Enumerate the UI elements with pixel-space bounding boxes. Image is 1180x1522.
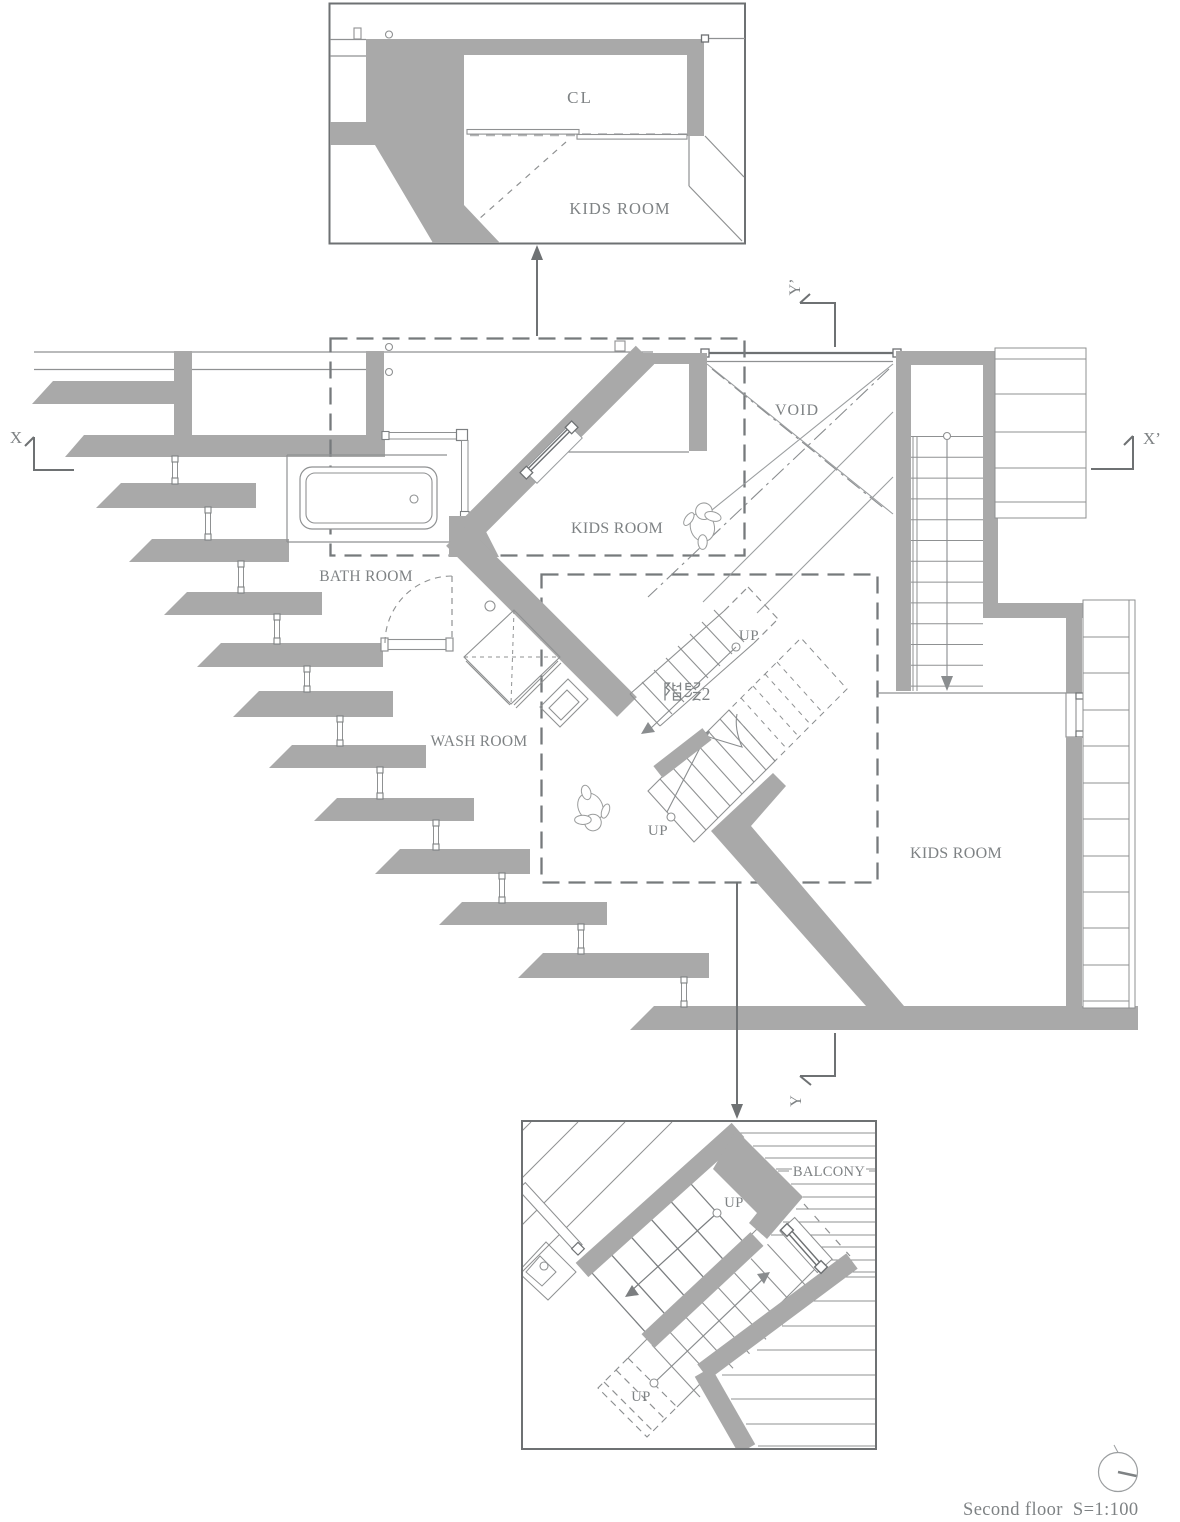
svg-text:UP: UP (648, 823, 668, 839)
svg-text:CL: CL (567, 88, 593, 107)
svg-text:Y’: Y’ (787, 279, 804, 296)
svg-text:BALCONY: BALCONY (793, 1164, 865, 1180)
svg-text:UP: UP (724, 1195, 744, 1211)
svg-text:KIDS ROOM: KIDS ROOM (571, 520, 663, 537)
svg-text:KIDS ROOM: KIDS ROOM (569, 199, 670, 218)
svg-text:UP: UP (631, 1389, 651, 1405)
svg-text:X’: X’ (1143, 429, 1161, 448)
svg-text:Second floor S=1:100: Second floor S=1:100 (963, 1500, 1139, 1520)
svg-text:Y: Y (788, 1095, 805, 1107)
svg-text:WASH ROOM: WASH ROOM (430, 733, 527, 750)
svg-text:2: 2 (702, 684, 711, 704)
svg-text:KIDS ROOM: KIDS ROOM (910, 845, 1002, 862)
svg-text:X: X (10, 428, 22, 447)
svg-text:VOID: VOID (775, 402, 819, 419)
svg-text:BATH ROOM: BATH ROOM (319, 568, 413, 585)
